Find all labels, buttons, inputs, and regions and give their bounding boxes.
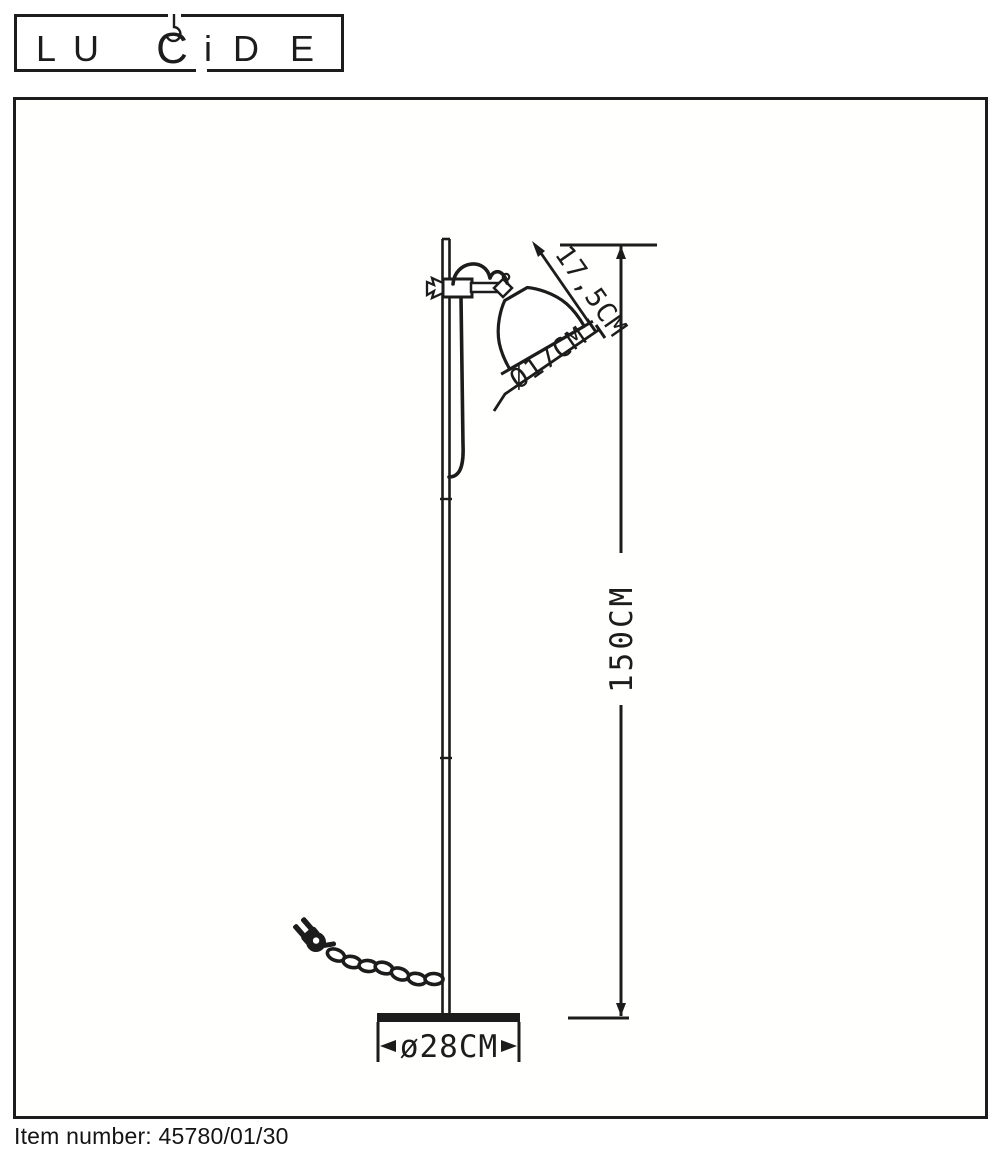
pole-clamp	[427, 274, 512, 298]
height-label: 150CM	[604, 585, 640, 693]
logo-letter-e: E	[290, 28, 314, 69]
power-cord-chain	[326, 947, 444, 987]
lamp-pole	[440, 239, 452, 1013]
product-dimension-sheet: L U C i D E	[0, 0, 1003, 1154]
cord-loop	[449, 297, 463, 477]
logo-letter-u: U	[73, 28, 99, 69]
base-diameter-label: ø28CM	[400, 1029, 498, 1065]
lucide-logo: L U C i D E	[14, 14, 344, 72]
arrowhead-left	[380, 1040, 396, 1052]
logo-letter-l: L	[36, 28, 56, 69]
logo-letter-d: D	[233, 28, 259, 69]
lucide-logo-art: L U C i D E	[14, 14, 344, 72]
item-number-line: Item number: 45780/01/30	[14, 1122, 289, 1150]
floor-lamp-diagram: 17,5CM Ø17CM 150CM	[13, 97, 988, 1119]
dimension-base-diameter: ø28CM	[378, 1022, 519, 1065]
dimension-height: 150CM	[560, 245, 657, 1018]
arrowhead-bottom	[616, 1003, 626, 1016]
logo-letter-c: C	[156, 24, 188, 72]
lamp-base	[377, 1013, 520, 1022]
arrowhead-top	[616, 246, 626, 259]
logo-letter-i: i	[204, 28, 212, 69]
arrowhead-right	[501, 1040, 517, 1052]
wing-screw-icon	[427, 278, 443, 298]
shade-pivot	[494, 279, 512, 297]
item-number-value: 45780/01/30	[159, 1123, 289, 1149]
clamp-block	[443, 279, 472, 297]
drawing-frame: 17,5CM Ø17CM 150CM	[13, 97, 988, 1119]
item-number-label: Item number:	[14, 1123, 152, 1149]
